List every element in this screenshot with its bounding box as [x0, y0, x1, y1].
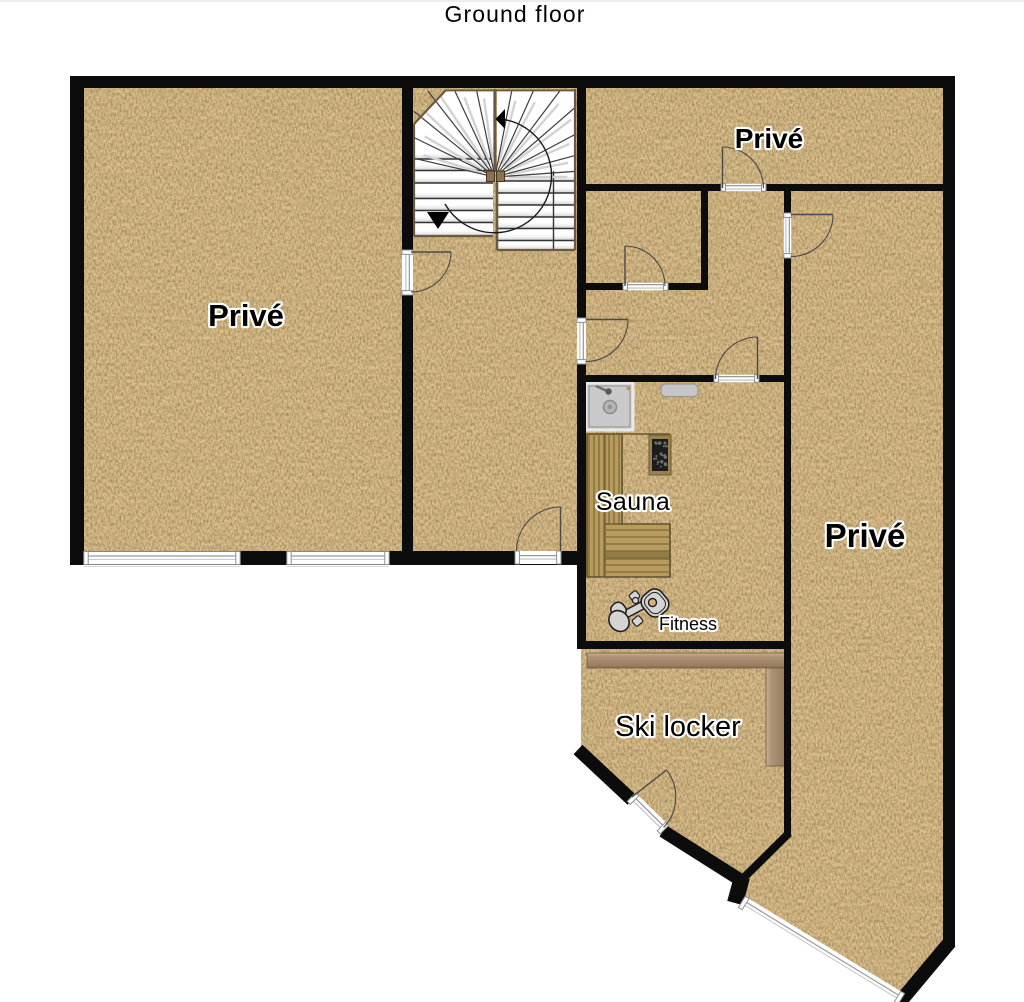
svg-text:Sauna: Sauna: [596, 488, 670, 516]
svg-text:Ski locker: Ski locker: [615, 711, 741, 743]
svg-text:Privé: Privé: [735, 123, 804, 154]
svg-text:Privé: Privé: [208, 298, 284, 333]
svg-text:Fitness: Fitness: [659, 614, 717, 634]
svg-text:Privé: Privé: [825, 517, 906, 554]
svg-text:Ground floor: Ground floor: [444, 1, 585, 27]
